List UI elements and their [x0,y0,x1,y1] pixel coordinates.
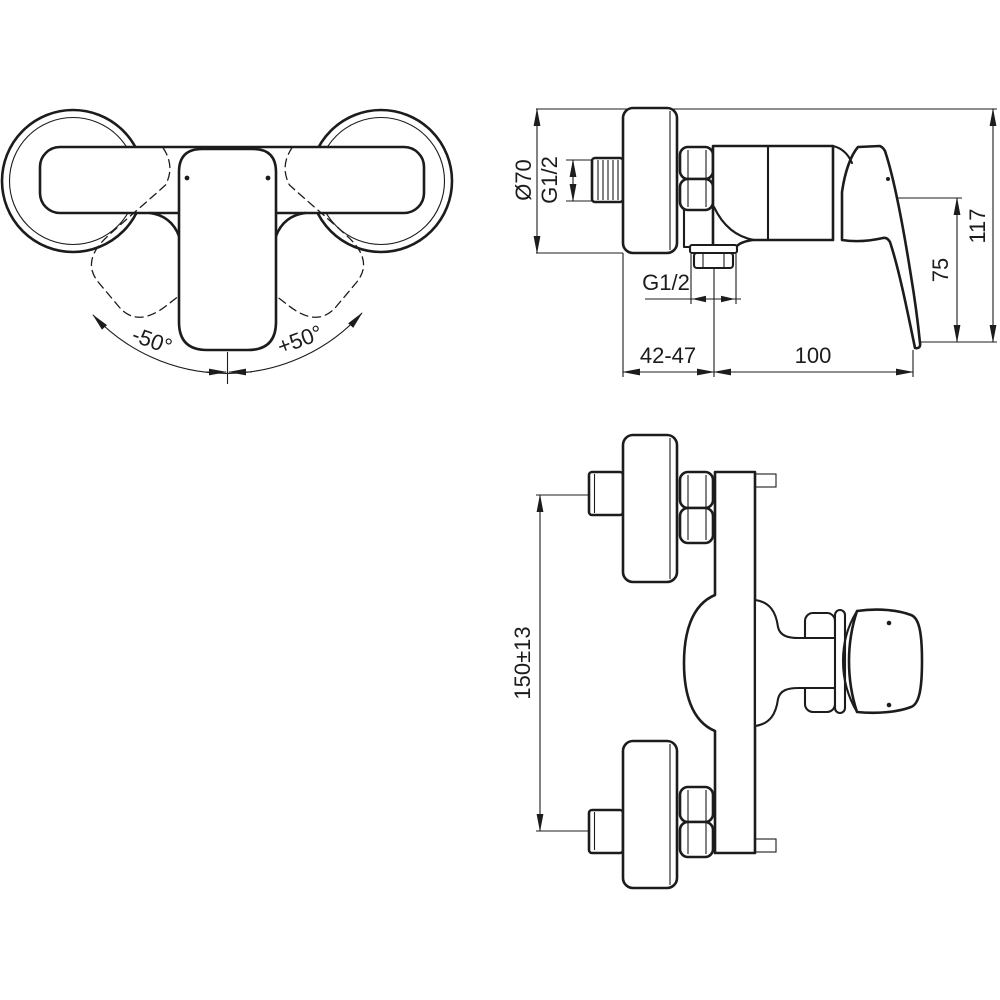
outlet-thread-label: G1/2 [642,270,690,295]
top-view: 150±13 [510,435,922,888]
plate-tab-top [755,474,776,487]
technical-drawing: -50° +50° [0,0,1000,1000]
handle-lever-side [842,146,920,348]
upper-nut-b [680,508,713,543]
dim-handle-height: 75 [928,198,957,342]
dim-pipe-spacing: 150±13 [510,495,540,831]
dim-projection: 100 [714,343,913,372]
escutcheon-diameter-label: Ø70 [511,159,536,201]
pipe-spacing-label: 150±13 [510,626,535,699]
projection-label: 100 [795,343,832,368]
outlet-dim-arrow-right [721,296,735,302]
plate-tab-bottom [755,839,776,852]
dim-inlet-thread: G1/2 [537,156,573,204]
left-shoulder-wing [150,213,179,236]
lower-nut-a [680,787,713,822]
wall-distance-label: 42-47 [640,343,696,368]
outlet-dim-arrow-left [692,296,706,302]
knob-pin-bottom [887,703,892,708]
upper-nut-a [680,472,713,508]
outlet-hex-nut [694,253,733,268]
lower-escutcheon [623,741,677,888]
escutcheon-side [623,108,677,253]
union-nut-lower [680,179,713,210]
handle-knob-top-view [849,610,922,713]
inlet-thread-label: G1/2 [537,156,562,204]
swing-left-label: -50° [129,322,176,359]
handle-lever-front [179,149,276,350]
right-shoulder-wing [276,213,305,236]
front-view: -50° +50° [2,110,452,384]
handle-height-label: 75 [928,258,953,282]
union-nut-upper [680,147,713,179]
total-height-label: 117 [965,208,990,243]
dim-wall-distance: 42-47 [623,343,714,372]
lower-nut-b [680,822,713,857]
outlet-flange [690,245,737,253]
dim-escutcheon-diameter: Ø70 [511,109,537,253]
mixer-body-side [713,146,833,246]
swing-right-label: +50° [274,320,326,359]
lever-pin [886,177,890,181]
handle-pin-right [266,176,271,181]
dim-total-height: 117 [965,109,993,342]
technical-drawing-page: -50° +50° [0,0,1000,1000]
handle-pin-left [185,176,190,181]
upper-escutcheon [623,435,677,582]
knob-pin-top [887,621,892,626]
side-view: Ø70 G1/2 117 75 42-47 100 G1/2 [511,108,997,377]
